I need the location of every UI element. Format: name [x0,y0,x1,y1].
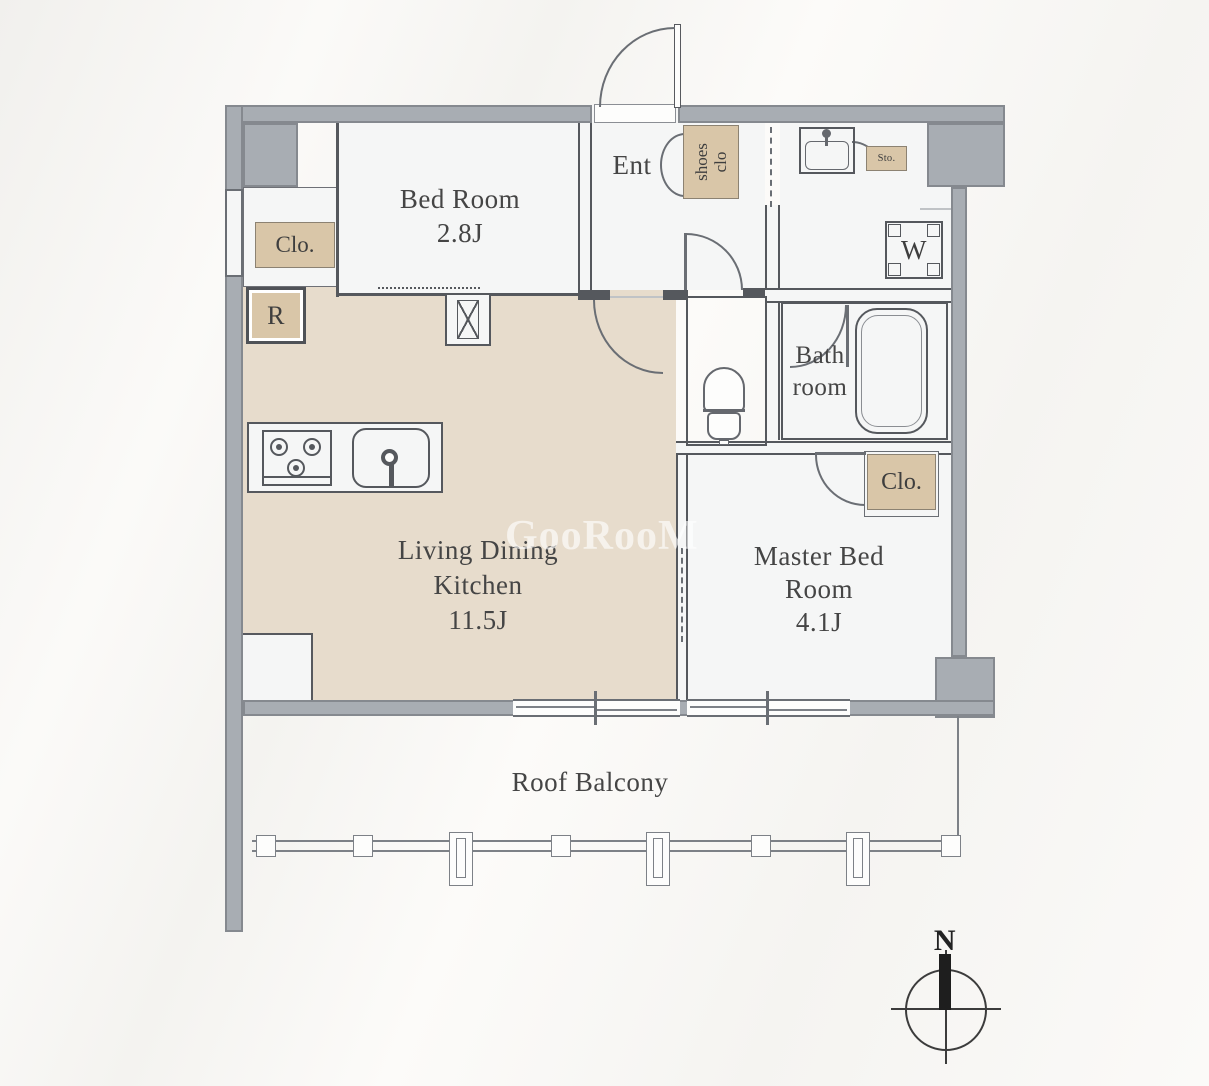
railing-post [551,835,571,857]
wall-chunk-topright [927,123,1005,187]
washroom-bath-divider [765,288,951,303]
wall-top-right [678,105,1005,123]
stove-burner-icon [270,438,288,456]
bathtub-inner [861,315,922,427]
ldk-balcony-window [513,699,680,717]
toilet-bowl-icon [707,412,741,440]
master-line2: Room [699,573,939,606]
shoes-closet-line1: shoes [692,143,711,181]
ldk-master-sliding-dashed [681,548,683,642]
faucet-stem-icon [389,463,394,488]
bedroom-sliding-door-dotted [378,287,480,289]
bedroom-label: Bed Room 2.8J [350,182,570,250]
ldk-window-mullion [594,691,597,725]
ldk-size: 11.5J [358,603,598,638]
ldk-corner-notch [243,633,313,700]
toilet-tank-icon [703,367,745,412]
wall-right [951,187,967,657]
bedroom-hall-wall [578,123,592,300]
railing-post [751,835,771,857]
master-size: 4.1J [699,606,939,639]
toilet-base-tab [719,440,729,445]
hall-ldk-wall-right [663,290,688,300]
master-line1: Master Bed [699,540,939,573]
ldk-window-sash-left [516,706,594,708]
entrance-label: Ent [594,148,670,182]
floor-plan: W Clo. R shoes clo Sto. Clo. Bed Room 2.… [0,0,1209,1086]
ldk-doorway-threshold [610,296,663,298]
shoes-closet-line2: clo [711,143,730,181]
storage-box: Sto. [866,146,907,171]
watermark: GooRooM [505,512,699,560]
hall-ldk-wall-left [578,290,610,300]
stove-burner-icon [303,438,321,456]
master-bedroom-label: Master Bed Room 4.1J [699,540,939,639]
washroom-step-line [920,208,951,210]
refrigerator-label: R [246,287,306,344]
bathroom-label: Bath room [770,340,870,404]
balcony-label: Roof Balcony [470,765,710,799]
hall-washroom-wall [765,205,780,290]
left-wall-window [225,189,243,277]
bathroom-line1: Bath [770,340,870,372]
railing-anchor [449,832,473,886]
bedroom-size: 2.8J [350,216,570,250]
bedroom-left-wall [336,123,339,297]
shoes-closet-label: shoes clo [692,143,730,181]
railing-anchor [646,832,670,886]
compass-north-needle [939,954,951,1010]
master-window-mullion [766,691,769,725]
shoes-closet-label-wrap: shoes clo [683,125,739,199]
railing-post [941,835,961,857]
railing-post [256,835,276,857]
railing-anchor [846,832,870,886]
bedroom-name: Bed Room [350,182,570,216]
ldk-line2: Kitchen [358,568,598,603]
master-window-sash-right [768,709,847,711]
faucet-knob-icon [381,449,398,466]
wall-chunk-topleft [243,123,298,187]
stove-burner-icon [287,459,305,477]
master-balcony-window [687,699,850,717]
master-closet-box: Clo. [867,454,936,510]
pipe-space-x-icon [457,300,479,339]
washer-label: W [885,221,943,279]
entrance-door-leaf [674,24,681,108]
bathroom-line2: room [770,372,870,404]
railing-post [353,835,373,857]
vanity-faucet-stem [825,136,828,146]
wall-top-left [225,105,592,123]
master-window-sash-left [690,706,766,708]
entrance-door-swing-arc [599,27,675,107]
washroom-opening-dashed [770,127,772,207]
balcony-right-edge [957,716,959,852]
bedroom-closet-box: Clo. [255,222,335,268]
ldk-window-sash-right [596,709,677,711]
